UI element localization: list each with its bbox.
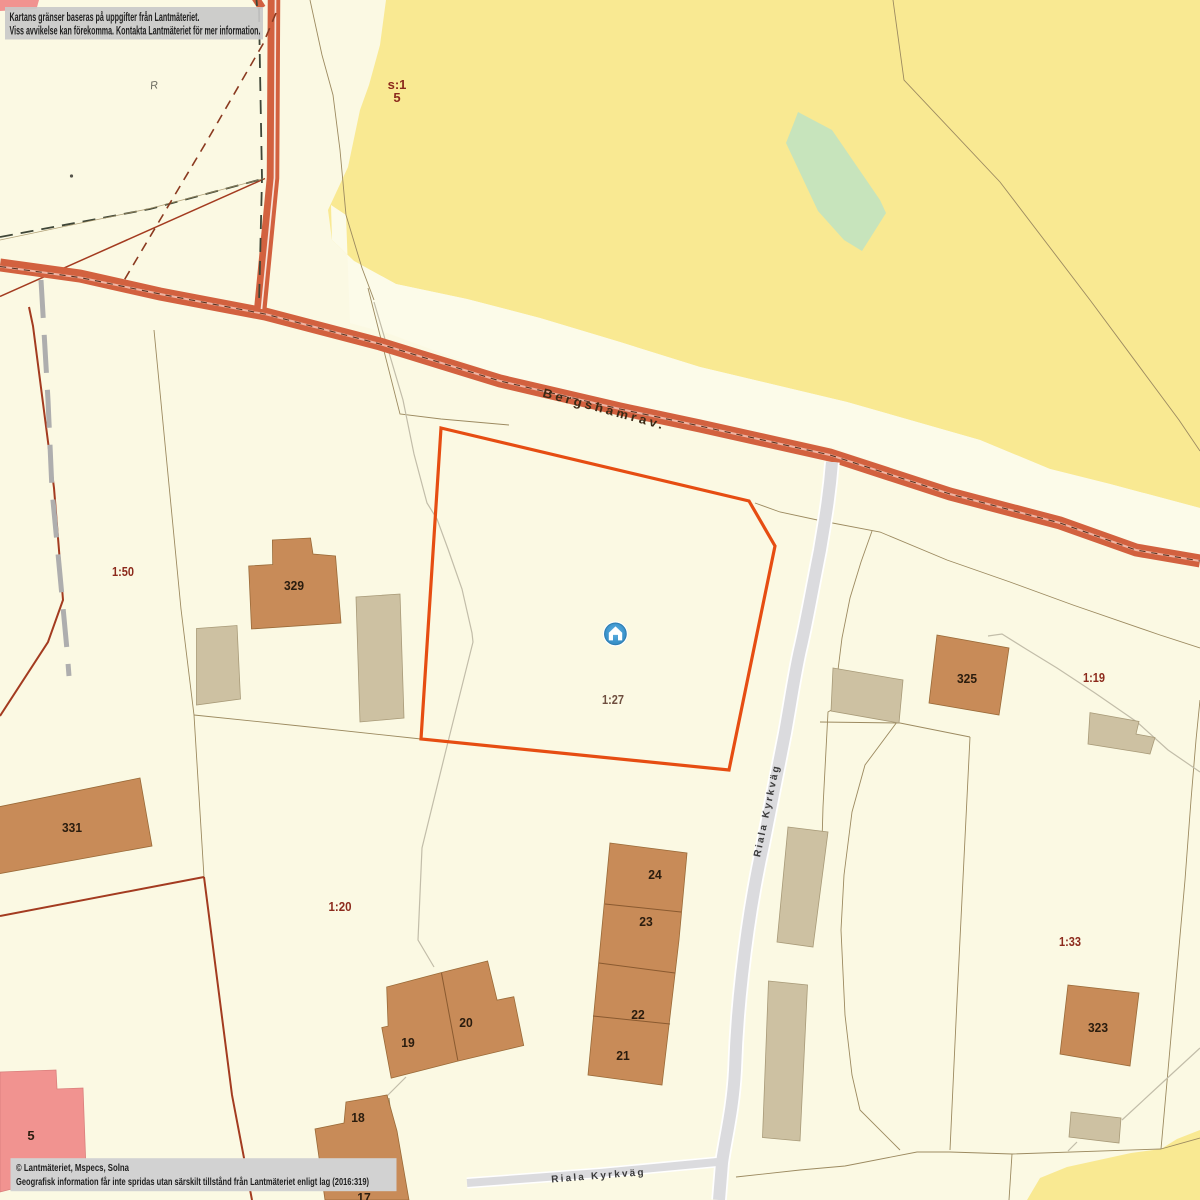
svg-text:18: 18	[351, 1110, 365, 1125]
svg-text:331: 331	[62, 820, 82, 835]
svg-text:24: 24	[648, 867, 662, 882]
svg-text:1:19: 1:19	[1083, 670, 1105, 685]
svg-text:Kartans gränser baseras på upp: Kartans gränser baseras på uppgifter frå…	[10, 10, 200, 24]
svg-text:21: 21	[616, 1048, 630, 1063]
svg-text:1:27: 1:27	[602, 692, 624, 707]
svg-text:329: 329	[284, 578, 304, 593]
svg-text:325: 325	[957, 671, 977, 686]
svg-text:323: 323	[1088, 1020, 1108, 1035]
svg-text:19: 19	[401, 1035, 415, 1050]
svg-text:Geografisk information får int: Geografisk information får inte spridas …	[16, 1176, 369, 1188]
svg-text:5: 5	[393, 90, 400, 105]
svg-text:1:50: 1:50	[112, 564, 134, 579]
svg-text:1:20: 1:20	[329, 899, 352, 914]
svg-text:5: 5	[27, 1128, 34, 1143]
svg-text:Viss avvikelse kan förekomma.: Viss avvikelse kan förekomma. Kontakta L…	[10, 24, 261, 38]
svg-text:20: 20	[459, 1015, 473, 1030]
svg-text:17: 17	[357, 1190, 371, 1200]
svg-text:1:33: 1:33	[1059, 934, 1081, 949]
svg-text:22: 22	[631, 1007, 645, 1022]
svg-text:© Lantmäteriet, Mspecs, Solna: © Lantmäteriet, Mspecs, Solna	[16, 1162, 129, 1174]
svg-text:23: 23	[639, 914, 653, 929]
